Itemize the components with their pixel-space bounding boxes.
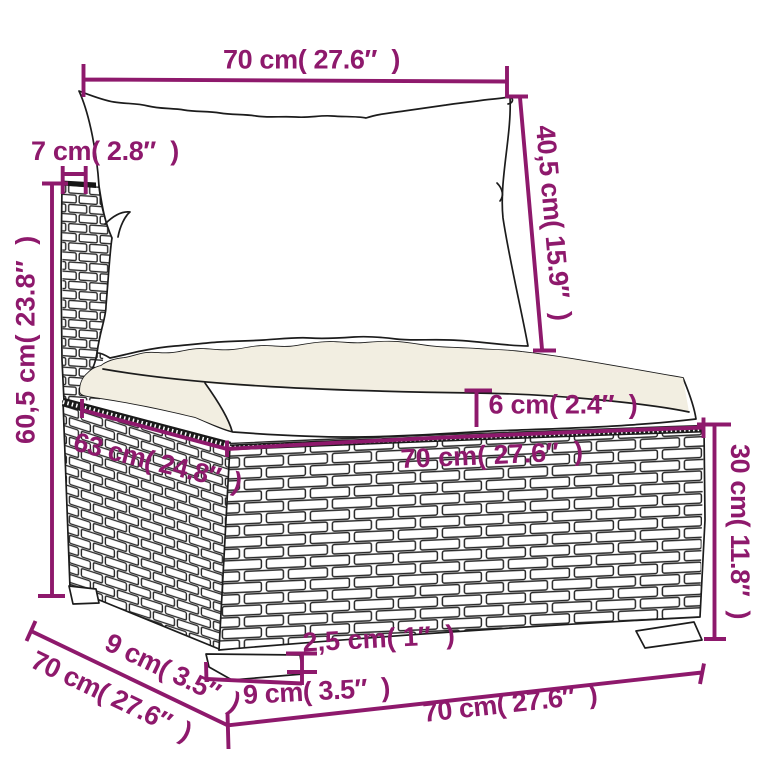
svg-text:60,5 cm( 23.8″ ): 60,5 cm( 23.8″ ) [11,236,41,444]
svg-text:7 cm( 2.8″ ): 7 cm( 2.8″ ) [31,136,179,166]
svg-text:70 cm( 27.6″ ): 70 cm( 27.6″ ) [223,45,400,75]
svg-text:6 cm( 2.4″ ): 6 cm( 2.4″ ) [489,390,638,420]
svg-text:30 cm( 11.8″ ): 30 cm( 11.8″ ) [725,444,755,619]
